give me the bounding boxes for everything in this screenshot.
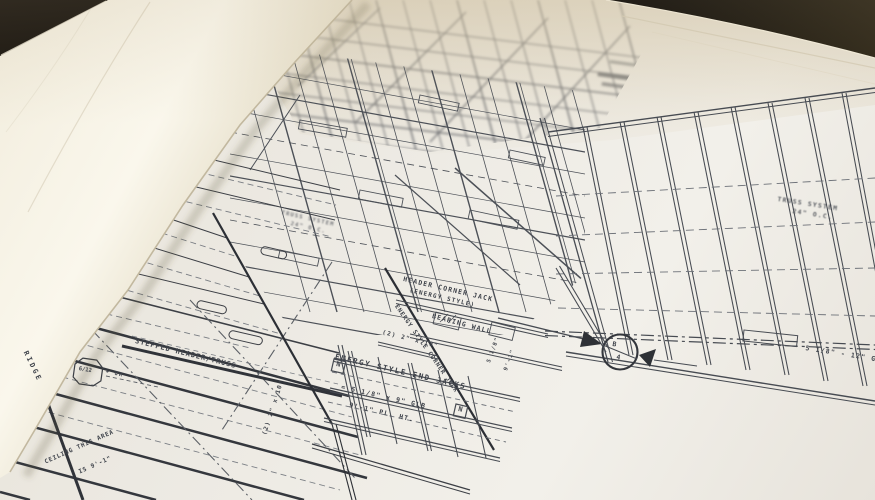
label-section-sheet: 4 (616, 354, 622, 361)
label-section-letter: B (612, 341, 618, 348)
blueprint-photo: HEADER CORNER JACK (ENERGY STYLE) BEARIN… (0, 0, 875, 500)
blueprint-linework (0, 0, 875, 500)
